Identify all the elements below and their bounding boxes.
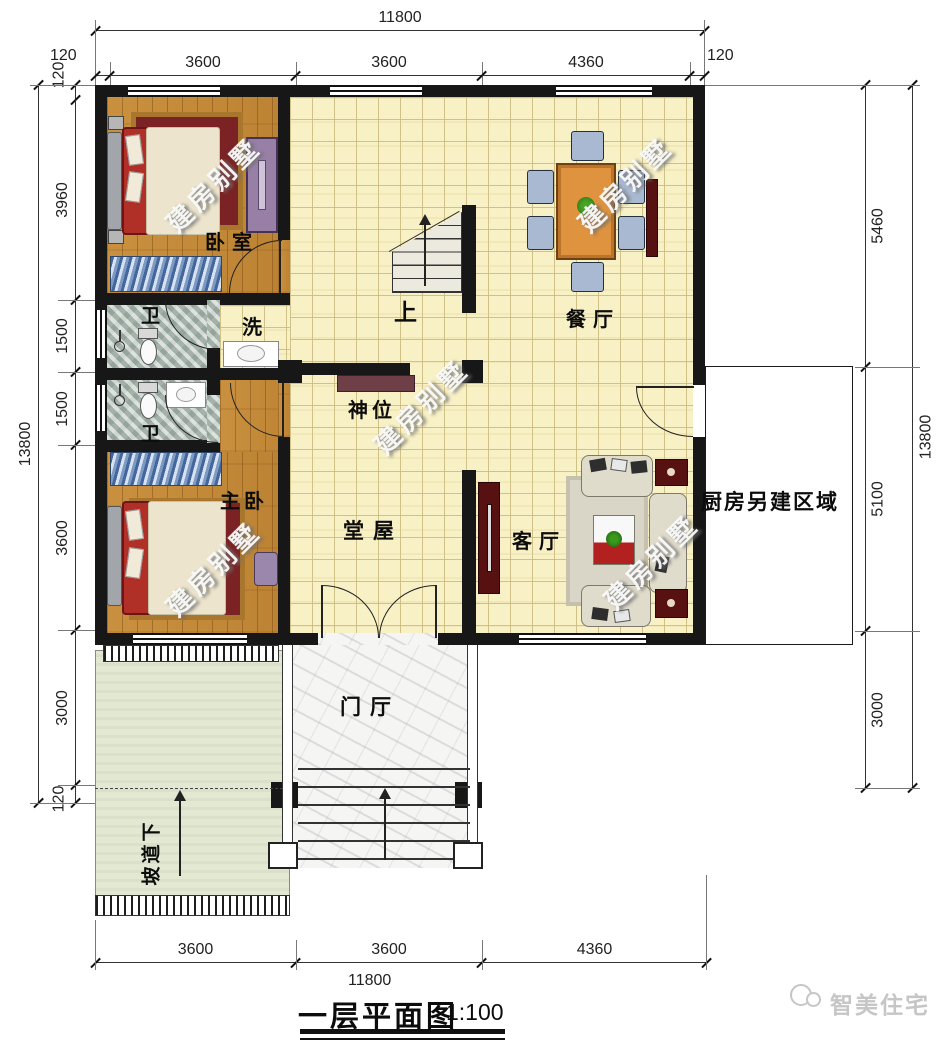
room-label-bath-lower: 卫 bbox=[141, 419, 160, 446]
shrine-cabinet bbox=[337, 375, 415, 392]
title-underline-thick bbox=[300, 1029, 505, 1034]
stairs-up-label: 上 bbox=[394, 293, 417, 327]
bench bbox=[254, 552, 278, 586]
shrine-wall bbox=[290, 363, 410, 375]
extension-line bbox=[296, 940, 297, 970]
window bbox=[519, 633, 646, 645]
dining-chair bbox=[527, 170, 554, 204]
wall bbox=[278, 437, 290, 633]
dim-top-total: 11800 bbox=[95, 30, 705, 31]
dim-label: 3600 bbox=[371, 941, 407, 959]
dim-left-total: 13800 bbox=[38, 85, 39, 803]
sofa-pillow bbox=[610, 458, 628, 472]
sofa-pillow bbox=[591, 607, 609, 621]
ramp-label: 坡道下 bbox=[137, 819, 164, 885]
dim-bottom-seg: 3600 bbox=[95, 962, 296, 963]
dim-label: 3600 bbox=[185, 54, 221, 72]
door-leaf bbox=[321, 585, 323, 638]
room-label-bath-upper: 卫 bbox=[141, 301, 160, 328]
dim-label: 3600 bbox=[178, 941, 214, 959]
dim-right-total: 13800 bbox=[912, 85, 913, 788]
floor-plan-canvas: 卧室 卫 洗 卫 主卧 堂屋 神位 上 餐厅 客厅 厨房另建区域 门厅 坡道下 … bbox=[0, 0, 952, 1044]
extension-line bbox=[855, 788, 920, 789]
extension-line bbox=[30, 803, 95, 804]
dim-label: 3960 bbox=[54, 182, 72, 218]
bedroom-window-seat bbox=[110, 256, 222, 292]
extension-line bbox=[58, 630, 95, 631]
door-leaf bbox=[282, 383, 284, 437]
shower-head bbox=[114, 395, 125, 406]
room-label-kitchen: 厨房另建区域 bbox=[701, 486, 839, 516]
dim-left-seg: 3600 bbox=[75, 445, 76, 630]
extension-line bbox=[95, 920, 96, 970]
extension-line bbox=[58, 300, 95, 301]
wall bbox=[95, 368, 290, 380]
dim-label: 3600 bbox=[371, 54, 407, 72]
entry-direction-shaft bbox=[384, 798, 386, 860]
extension-line bbox=[855, 367, 920, 368]
door-leaf bbox=[279, 240, 281, 293]
extension-line bbox=[705, 85, 920, 86]
stairs-direction-arrowhead bbox=[419, 214, 431, 225]
dim-left-seg: 3000 bbox=[75, 630, 76, 785]
tv-screen bbox=[487, 504, 492, 572]
toilet-bowl bbox=[140, 393, 157, 419]
dim-left-seg bbox=[75, 785, 76, 803]
dim-top-seg bbox=[95, 75, 110, 76]
dim-top-seg bbox=[690, 75, 705, 76]
bed-headboard bbox=[107, 506, 122, 606]
ramp-direction-arrowhead bbox=[174, 790, 186, 801]
dim-label: 13800 bbox=[17, 422, 35, 467]
window bbox=[95, 310, 107, 358]
master-window-seat bbox=[110, 452, 222, 486]
dim-label: 120 bbox=[707, 47, 734, 65]
sofa-pillow bbox=[630, 460, 647, 474]
drawing-scale: 1:100 bbox=[446, 999, 504, 1026]
toilet-tank bbox=[138, 382, 158, 393]
dim-top-seg: 3600 bbox=[110, 75, 296, 76]
porch-rail bbox=[467, 645, 478, 843]
wall bbox=[278, 85, 290, 240]
room-label-hall: 堂屋 bbox=[343, 515, 403, 545]
extension-line bbox=[58, 785, 95, 786]
toilet-bowl bbox=[140, 339, 157, 365]
porch-column-base bbox=[453, 842, 483, 869]
door-leaf bbox=[435, 585, 437, 638]
dim-label: 3600 bbox=[54, 520, 72, 556]
logo-icon bbox=[806, 992, 821, 1007]
dim-label: 5100 bbox=[870, 481, 888, 517]
sideboard bbox=[646, 179, 658, 257]
corner-table-dot bbox=[667, 599, 675, 607]
window bbox=[330, 85, 422, 97]
window bbox=[128, 85, 220, 97]
extension-line bbox=[58, 445, 95, 446]
room-label-dining: 餐厅 bbox=[566, 303, 620, 332]
extension-line bbox=[30, 85, 95, 86]
wall bbox=[207, 348, 220, 395]
room-label-living: 客厅 bbox=[512, 525, 566, 554]
ramp-centerline bbox=[95, 788, 283, 789]
dim-label: 4360 bbox=[577, 941, 613, 959]
wash-basin bbox=[237, 345, 265, 362]
ramp-direction-shaft bbox=[179, 800, 181, 876]
dim-label: 11800 bbox=[378, 9, 421, 27]
dim-label: 13800 bbox=[917, 414, 935, 459]
extension-line bbox=[58, 372, 95, 373]
title-underline-thin bbox=[300, 1038, 505, 1040]
corner-table-dot bbox=[667, 468, 675, 476]
ramp-hatch bbox=[103, 645, 279, 662]
wall bbox=[95, 85, 107, 645]
window bbox=[556, 85, 652, 97]
dim-top-seg: 3600 bbox=[296, 75, 482, 76]
dim-left-seg bbox=[75, 85, 76, 100]
porch-column-base bbox=[268, 842, 298, 869]
entry-direction-arrowhead bbox=[379, 788, 391, 799]
room-label-foyer: 门厅 bbox=[340, 691, 400, 721]
logo-text: 智美住宅 bbox=[830, 986, 930, 1020]
extension-line bbox=[482, 940, 483, 970]
wardrobe-door bbox=[258, 160, 266, 210]
dim-bottom-seg: 4360 bbox=[482, 962, 707, 963]
ramp-surface bbox=[95, 650, 290, 910]
dim-right-seg: 5460 bbox=[865, 85, 866, 367]
stairs-direction-shaft bbox=[424, 224, 426, 286]
porch-rail bbox=[282, 645, 293, 843]
wall bbox=[693, 85, 705, 645]
window bbox=[95, 385, 107, 431]
room-label-master: 主卧 bbox=[220, 485, 268, 514]
dim-label: 5460 bbox=[870, 208, 888, 244]
dining-chair bbox=[571, 131, 604, 161]
extension-line bbox=[706, 875, 707, 970]
shower-pipe bbox=[119, 384, 121, 395]
dim-label: 1500 bbox=[54, 391, 72, 427]
extension-line bbox=[855, 631, 920, 632]
dim-right-seg: 5100 bbox=[865, 367, 866, 631]
dim-left-seg: 1500 bbox=[75, 300, 76, 372]
dim-bottom-seg: 3600 bbox=[296, 962, 482, 963]
room-label-wash: 洗 bbox=[242, 311, 262, 340]
bed-headboard bbox=[107, 132, 122, 230]
dim-label: 4360 bbox=[568, 54, 604, 72]
ramp-hatch bbox=[95, 895, 290, 916]
room-label-bedroom: 卧室 bbox=[205, 226, 259, 255]
window bbox=[133, 633, 247, 645]
dining-chair bbox=[618, 216, 645, 250]
dim-label: 3000 bbox=[54, 690, 72, 726]
wall bbox=[207, 443, 220, 452]
dim-left-seg: 3960 bbox=[75, 100, 76, 300]
toilet-tank bbox=[138, 328, 158, 339]
step-line bbox=[298, 768, 470, 770]
nightstand bbox=[108, 116, 124, 130]
dim-top-seg: 4360 bbox=[482, 75, 690, 76]
tv-wall bbox=[462, 470, 476, 645]
dim-label: 1500 bbox=[54, 318, 72, 354]
dining-chair bbox=[527, 216, 554, 250]
dim-right-seg: 3000 bbox=[865, 631, 866, 788]
stair-wall bbox=[462, 205, 476, 313]
dining-chair bbox=[571, 262, 604, 292]
door-opening bbox=[693, 385, 705, 437]
shower-pipe bbox=[119, 330, 121, 341]
dim-label: 120 bbox=[50, 786, 68, 813]
wall bbox=[207, 293, 220, 300]
dim-left-seg: 1500 bbox=[75, 372, 76, 445]
coffee-table-plant bbox=[606, 531, 622, 547]
shower-head bbox=[114, 341, 125, 352]
dim-label: 3000 bbox=[870, 692, 888, 728]
dim-label: 11800 bbox=[348, 972, 391, 990]
